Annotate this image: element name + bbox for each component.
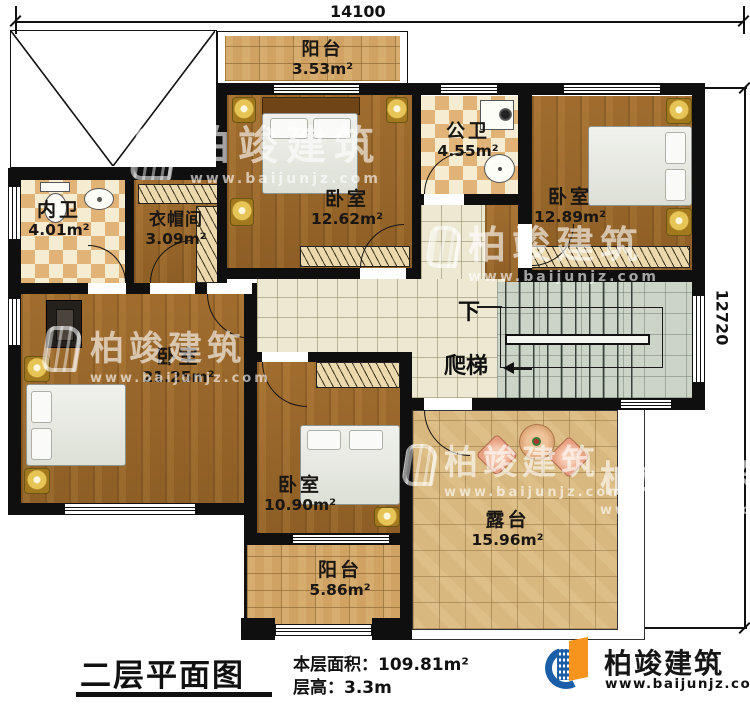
window <box>273 84 360 94</box>
room-label-balcony-top: 阳台 3.53m² <box>270 41 375 78</box>
room-label-bedroom-top-left: 卧室 12.62m² <box>297 190 397 229</box>
page-title: 二层平面图 <box>80 650 245 695</box>
stairs-down-label: 下 <box>458 294 480 326</box>
wardrobe <box>316 362 400 388</box>
watermark-logo-icon <box>401 444 440 486</box>
hall-vestibule <box>485 205 518 282</box>
title-underline <box>76 692 272 697</box>
door-gap <box>150 283 195 294</box>
nightstand <box>230 198 254 226</box>
stair-arrow-head <box>503 362 514 374</box>
wall <box>400 352 412 625</box>
nightstand <box>232 97 256 123</box>
dimension-line-right <box>744 88 746 628</box>
bed <box>262 113 358 194</box>
balcony-rail <box>244 545 247 629</box>
door-gap <box>424 398 472 410</box>
floor-height-info: 层高：3.3m <box>293 673 392 698</box>
dimension-witness <box>705 87 747 89</box>
balcony-post <box>372 618 412 640</box>
room-label-bath-ensuite: 内卫 4.01m² <box>16 201 102 240</box>
floor-area-info: 本层面积：109.81m² <box>293 650 469 675</box>
window <box>275 624 372 636</box>
toilet <box>40 182 70 192</box>
window <box>292 534 390 544</box>
bed <box>26 384 126 466</box>
window <box>440 84 498 94</box>
room-label-cloakroom: 衣帽间 3.09m² <box>130 212 222 248</box>
window <box>8 298 21 346</box>
floor-plan-canvas: 阳台 3.53m² 卧室 12.62m² 公卫 4.55m² 卧室 12.89m… <box>0 0 750 704</box>
window <box>64 503 196 515</box>
door-gap <box>424 194 464 205</box>
door-gap <box>262 352 308 362</box>
wall <box>518 270 705 282</box>
watermark-logo-icon <box>425 226 464 268</box>
door-gap <box>207 283 252 294</box>
room-label-bedroom-top-right: 卧室 12.89m² <box>525 188 615 227</box>
nightstand <box>666 98 692 124</box>
wardrobe <box>138 184 218 204</box>
brand-site: www.baijunjz.com <box>605 676 750 692</box>
door-gap <box>360 268 406 279</box>
room-label-terrace: 露台 15.96m² <box>460 511 555 550</box>
watermark-logo-icon <box>129 128 179 180</box>
roof-void-area <box>10 30 217 168</box>
stair-arrow-line <box>512 367 532 370</box>
window <box>563 84 661 94</box>
dimension-line-top <box>15 21 744 23</box>
window <box>692 295 705 383</box>
room-label-bedroom-bottom: 卧室 10.90m² <box>255 476 345 515</box>
stairs-ladder-label: 爬梯 <box>444 348 488 380</box>
wall <box>8 168 226 180</box>
window <box>620 399 672 409</box>
brand-logo-icon <box>543 637 601 695</box>
room-label-bath-public: 公卫 4.55m² <box>428 122 508 161</box>
watermark-logo-icon <box>40 326 83 372</box>
roof-slope-lines <box>11 31 215 166</box>
room-label-bedroom-master: 卧室 21.25m² <box>126 348 231 387</box>
room-label-balcony-bottom: 阳台 5.86m² <box>295 561 385 600</box>
stair-handrail <box>505 334 650 345</box>
dimension-label-top: 14100 <box>330 2 386 21</box>
nightstand <box>386 97 408 123</box>
nightstand <box>666 208 692 236</box>
nightstand <box>24 468 50 494</box>
dimension-witness <box>645 627 747 629</box>
wall <box>217 95 227 294</box>
stair-down-leader <box>477 306 502 308</box>
door-gap <box>518 224 532 268</box>
dimension-label-right: 12720 <box>713 288 732 348</box>
wall <box>412 95 421 279</box>
nightstand <box>374 507 400 527</box>
door-gap <box>88 283 126 294</box>
